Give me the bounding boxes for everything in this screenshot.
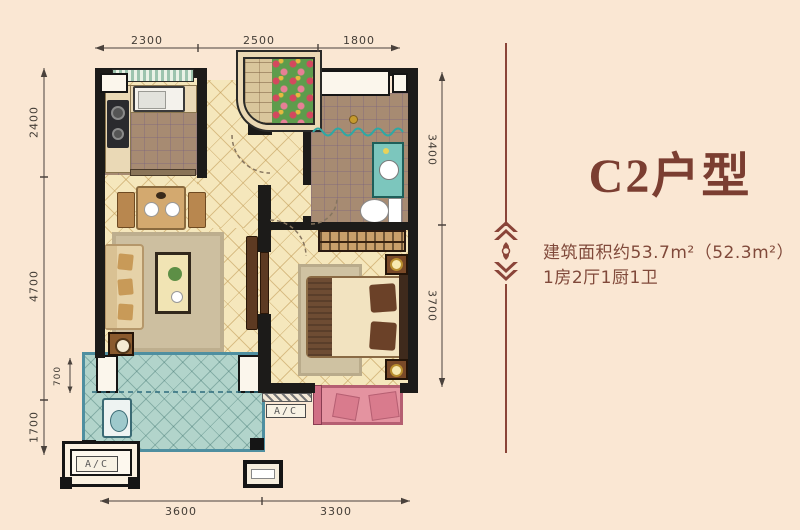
bed-pillow — [369, 283, 397, 313]
balcony-corner-block — [250, 438, 264, 450]
stove — [107, 100, 129, 148]
balcony-window-left — [96, 355, 118, 393]
divider-line-top — [505, 43, 507, 226]
bathroom-vanity — [372, 142, 404, 198]
dim-right-1: 3400 — [426, 134, 439, 166]
flower-bed-bricks — [245, 59, 276, 123]
wall-bedroom-bottom-left — [258, 383, 315, 393]
dim-right-2: 3700 — [426, 290, 439, 322]
floorplan-page: A/C A/C — [0, 0, 800, 530]
tv-console — [246, 236, 258, 330]
toilet-tank — [388, 198, 402, 224]
bay-pillow — [332, 393, 360, 421]
bed-headboard — [399, 272, 408, 362]
dim-top-2: 2500 — [243, 34, 275, 47]
wall-entry-top — [248, 124, 272, 135]
bed-pillow — [369, 321, 397, 351]
fridge — [100, 73, 128, 93]
washing-machine-door — [110, 410, 128, 432]
wall-mid-upper — [258, 185, 271, 252]
nightstand-bottom — [385, 359, 408, 380]
sofa — [104, 244, 144, 330]
divider-line-bottom — [505, 284, 507, 453]
wardrobe — [318, 230, 406, 252]
side-table-lamp — [108, 332, 134, 356]
floor-drain — [349, 115, 358, 124]
dim-top-3: 1800 — [343, 34, 375, 47]
dim-top-1: 2300 — [131, 34, 163, 47]
bay-window-seat — [315, 385, 403, 425]
ac-corner-block — [128, 477, 140, 489]
toilet-bowl — [360, 199, 389, 223]
dim-bottom-2: 3300 — [320, 505, 352, 518]
plan-title: C2户型 — [545, 136, 795, 206]
drain-platform — [243, 460, 283, 488]
bay-pillow — [368, 391, 399, 421]
dim-left-inner: 700 — [53, 366, 63, 386]
ac-corner-block — [60, 477, 72, 489]
wall-bedroom-bottom-right — [400, 383, 418, 393]
rooms-text: 1房2厅1厨1卫 — [543, 263, 658, 288]
dining-table — [136, 186, 186, 230]
area-text: 建筑面积约53.7m²（52.3m²） — [543, 238, 794, 263]
dim-left-2: 4700 — [28, 270, 41, 302]
wall-mid-lower — [258, 314, 271, 386]
kitchen-threshold — [130, 169, 196, 176]
ac-label-1: A/C — [76, 456, 118, 472]
bedroom-door-leaf — [260, 252, 269, 314]
dim-bottom-1: 3600 — [165, 505, 197, 518]
bathroom-window-large — [318, 70, 390, 96]
coffee-table — [155, 252, 191, 314]
bathroom-window-small — [392, 73, 408, 93]
washing-machine — [102, 398, 132, 438]
divider-ornament-icon — [491, 220, 521, 282]
dim-left-3: 1700 — [28, 411, 41, 443]
nightstand-top — [385, 254, 408, 275]
dining-chair-left — [117, 192, 135, 228]
wall-bedroom-top — [268, 222, 418, 230]
flower-bed — [243, 57, 315, 125]
ac-platform-2-hatch — [262, 393, 312, 402]
dim-left-1: 2400 — [28, 106, 41, 138]
bed — [306, 276, 402, 358]
wall-kitchen-right — [197, 68, 207, 178]
ac-label-2: A/C — [266, 404, 306, 418]
wall-left — [95, 68, 105, 358]
kitchen-sink — [133, 86, 185, 112]
flower-bed-flowers — [272, 59, 313, 123]
dining-chair-right — [188, 192, 206, 228]
